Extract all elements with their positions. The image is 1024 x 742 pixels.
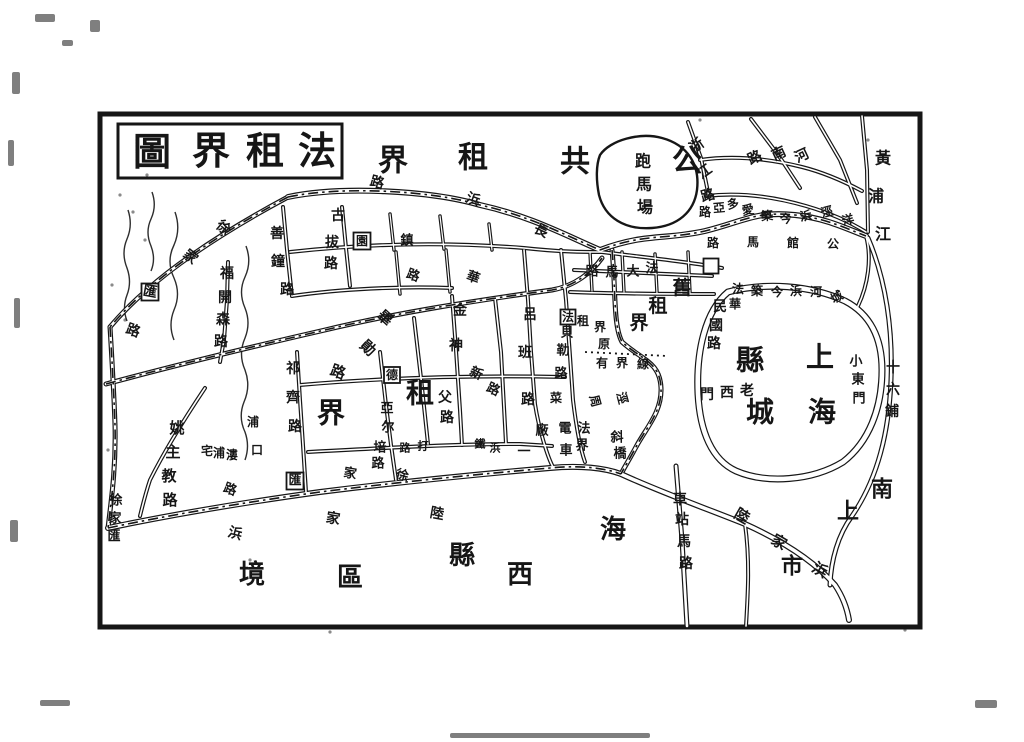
minguo-road-label-char: 民	[713, 299, 727, 315]
shiliupu-label-char: 十	[886, 359, 900, 376]
dubail-road-label-char: 路	[521, 391, 536, 408]
map-title-char: 圖	[133, 130, 171, 174]
shanghai-county-city-char: 海	[808, 396, 836, 429]
shiliupu-label-char: 鋪	[885, 403, 899, 420]
station-road-label-char: 路	[679, 555, 694, 572]
xiaodongmen-gate-char: 小	[849, 355, 862, 370]
bishop-yao-road-label-char: 姚	[168, 419, 184, 437]
old-concession-label-char: 舊	[672, 277, 691, 299]
bayle-road-label-char: 勒	[556, 343, 569, 359]
ferguson-road-label-char: 開	[218, 290, 232, 306]
tram-depot-label-char: 一	[517, 445, 530, 460]
qiqi-road-label-char: 路	[288, 418, 303, 435]
nanshi-label-char: 上	[837, 500, 859, 525]
shanghai-county-city-char: 縣	[736, 344, 764, 377]
bishop-yao-road-label-char: 教	[160, 467, 177, 485]
pukou-label-char: 浦	[247, 414, 259, 429]
concession-big-label-char: 界	[317, 397, 345, 430]
french-concession-map: 圖界租法界租共公跑馬場浙江路路南河黃浦江長浜路洋涇浜今築愛多亞路公館馬路法大馬路…	[0, 0, 1024, 742]
box-fa	[704, 259, 719, 274]
original-boundary-label-char: 界	[594, 319, 606, 334]
scan-artifact-9	[90, 20, 100, 32]
original-boundary-label-char: 原	[598, 337, 610, 351]
international-settlement-char: 租	[458, 141, 488, 176]
speck-7	[328, 630, 331, 633]
xujiahui-road-label-char: 匯	[142, 283, 159, 301]
old-concession-label-char: 界	[629, 312, 648, 334]
tram-depot-label-char: 廠	[535, 423, 549, 439]
xujiahui-road-south-label-char: 匯	[288, 474, 301, 489]
edward-avenue-note-char: 亞	[712, 201, 725, 216]
roi-albert-road-label-char: 路	[371, 456, 385, 472]
ferguson-road-label-char: 森	[216, 311, 231, 328]
bayle-road-label-char: 貝	[560, 326, 573, 341]
nanshi-label-char: 南	[871, 478, 893, 503]
xujiahui-label-char: 徐	[108, 493, 122, 509]
consulat-road-label-char: 公	[827, 237, 839, 251]
minguo-road-label-char: 路	[707, 335, 722, 352]
scan-artifact-3	[8, 140, 14, 166]
city-moat-note-char: 築	[750, 283, 764, 298]
shanghai-county-city-char: 上	[806, 341, 834, 374]
edward-avenue-note-char: 築	[759, 207, 774, 223]
de-label-char: 德	[386, 367, 398, 382]
city-moat-note-char: 河	[809, 284, 822, 299]
pukou-label-char: 口	[251, 443, 263, 457]
speck-1	[131, 210, 134, 213]
scan-artifact-0	[35, 14, 55, 22]
fa-da-malu-label-char: 馬	[605, 266, 618, 281]
shanzhong-road-label-char: 路	[280, 281, 295, 298]
zhen-label: 鎮	[400, 233, 413, 249]
speck-8	[143, 238, 146, 241]
consulat-road-label-char: 馬	[747, 235, 759, 249]
edward-avenue-note-char: 浜	[799, 207, 813, 224]
scan-artifact-1	[62, 40, 73, 46]
county-west-boundary-char: 境	[239, 559, 265, 590]
bayle-road-label-char: 路	[554, 366, 568, 382]
racecourse-label-char: 場	[637, 198, 653, 217]
speck-4	[123, 318, 126, 321]
original-boundary-label-char: 法	[562, 309, 574, 324]
roi-albert-road-label-char: 尔	[381, 420, 394, 436]
xujiahui-label-char: 匯	[107, 530, 120, 545]
datiebang-label-char: 浜	[490, 441, 501, 455]
huangpu-river-label-char: 江	[875, 225, 891, 244]
laoximen-gate-char: 老	[740, 382, 754, 399]
zhaipulou-label-char: 宅	[201, 443, 213, 458]
zhen-label-char: 鎮	[400, 233, 413, 249]
tram-depot-label-char: 界	[575, 438, 588, 454]
map-page: 法租界圖 圖界租法界租共公跑馬場浙江路路南河黃浦江長浜路洋涇浜今築愛多亞路公館馬…	[0, 0, 1024, 742]
tram-depot-label-char: 電	[558, 422, 571, 437]
scan-artifact-6	[40, 700, 70, 706]
laoximen-gate-char: 西	[720, 385, 734, 401]
map-title-char: 界	[192, 129, 230, 173]
city-moat-note-char: 法	[732, 281, 744, 296]
racecourse-label-char: 馬	[636, 175, 652, 194]
scan-artifact-7	[450, 733, 650, 738]
shanzhong-road-label-char: 鐘	[271, 253, 285, 270]
fa-da-malu-label-char: 路	[585, 264, 599, 280]
lujiabang-south-label-char: 陸	[429, 504, 446, 523]
tram-depot-label-char: 車	[559, 443, 572, 459]
shanzhong-road-label-char: 善	[270, 225, 284, 242]
xujiahui-label-char: 家	[108, 511, 122, 527]
huangpu-river-label-char: 浦	[868, 187, 884, 206]
gubo-road-label-char: 拔	[325, 234, 340, 251]
scan-artifact-8	[975, 700, 997, 708]
map-title-char: 法	[298, 129, 336, 173]
yuan-label-char: 園	[356, 234, 368, 248]
zhaipulou-label-char: 漊	[226, 447, 238, 462]
ferguson-road-label-char: 福	[219, 265, 234, 282]
edward-avenue-note-char: 多	[726, 195, 740, 212]
jinshenfu-road-label-char: 路	[440, 409, 455, 426]
speck-2	[145, 173, 148, 176]
qiqi-road-label-char: 祁	[286, 360, 300, 377]
cai-label: 菜	[549, 390, 562, 405]
qiqi-road-label-char: 齊	[285, 389, 301, 406]
original-boundary-label-char: 界	[616, 355, 628, 370]
datiebang-label-char: 路	[400, 441, 412, 455]
racecourse-label-char: 跑	[635, 152, 651, 171]
consulat-road-label-char: 路	[707, 235, 720, 250]
zhaipulou-label-char: 浦	[213, 445, 225, 460]
scan-artifact-4	[14, 298, 20, 328]
racecourse-label: 跑馬場	[635, 152, 653, 217]
datiebang-label-char: 打	[418, 439, 429, 453]
original-boundary-label-char: 有	[596, 355, 608, 370]
old-concession-label-char: 租	[648, 295, 667, 317]
station-road-label-char: 馬	[677, 534, 691, 550]
international-settlement-char: 共	[560, 145, 590, 180]
consulat-road-label-char: 館	[786, 235, 799, 250]
roi-albert-road-label-char: 培	[373, 440, 386, 456]
city-moat-note-char: 浜	[790, 283, 802, 298]
jinshenfu-road-label-char: 神	[449, 337, 463, 354]
dubail-road-label-char: 呂	[523, 307, 537, 323]
scan-artifact-5	[10, 520, 18, 542]
shiliupu-label: 十六鋪	[885, 359, 900, 420]
international-settlement-char: 界	[378, 144, 408, 179]
tram-depot-label-char: 法	[577, 421, 590, 437]
edward-avenue-note-char: 愛	[741, 201, 755, 218]
gubo-road-label-char: 古	[331, 207, 345, 224]
edward-avenue-note-char: 今	[778, 210, 793, 226]
speck-5	[106, 448, 109, 451]
jinshenfu-road-label-char: 父	[437, 390, 453, 406]
scan-artifact-2	[12, 72, 20, 94]
fa-da-malu-label-char: 法	[645, 261, 658, 277]
yuan-label: 園	[356, 234, 368, 248]
cai-label-char: 菜	[549, 390, 562, 405]
speck-11	[698, 118, 701, 121]
original-boundary-label-char: 線	[637, 356, 649, 371]
roi-albert-road-label-char: 亞	[380, 402, 393, 417]
shanghai-county-city-char: 城	[746, 396, 774, 429]
bishop-yao-road-label-char: 路	[162, 491, 178, 509]
datiebang-label-char: 鐵	[475, 437, 486, 451]
county-west-boundary-char: 縣	[449, 541, 475, 571]
speck-3	[110, 283, 113, 286]
edward-avenue-note-char: 路	[699, 204, 712, 219]
nanshi-label-char: 市	[781, 554, 803, 580]
xieqiao-label-char: 橋	[613, 446, 627, 462]
county-west-boundary-char: 西	[507, 560, 533, 590]
xieqiao-label-char: 斜	[609, 430, 623, 446]
xiaodongmen-gate-char: 東	[851, 372, 864, 388]
station-road-label-char: 車	[673, 491, 687, 508]
speck-6	[903, 628, 906, 631]
ferguson-road-label-char: 路	[214, 333, 229, 350]
speck-0	[118, 193, 121, 196]
city-moat-note-char: 華	[729, 296, 741, 311]
huangpu-river-label-char: 黃	[874, 149, 891, 168]
shiliupu-label-char: 六	[886, 381, 900, 398]
laoximen-gate-char: 門	[700, 387, 714, 403]
speck-9	[866, 138, 869, 141]
jinshenfu-road-label-char: 金	[452, 302, 468, 319]
de-label: 德	[386, 367, 398, 382]
station-road-label-char: 站	[675, 511, 689, 528]
gubo-road-label-char: 路	[324, 255, 339, 272]
fa-da-malu-label-char: 大	[626, 264, 639, 280]
minguo-road-label-char: 國	[709, 318, 723, 334]
bishop-yao-road-label-char: 主	[165, 443, 180, 461]
speck-10	[248, 558, 251, 561]
original-boundary-label-char: 租	[577, 314, 589, 328]
county-west-boundary-char: 區	[337, 563, 363, 593]
city-moat-note-char: 今	[770, 284, 784, 299]
concession-big-label-char: 租	[406, 377, 434, 410]
map-title-char: 租	[246, 129, 284, 173]
xiaodongmen-gate-char: 門	[852, 392, 865, 407]
dubail-road-label-char: 班	[518, 344, 532, 361]
xujiahui-label: 徐家匯	[107, 493, 122, 545]
county-west-boundary-char: 海	[600, 515, 626, 545]
